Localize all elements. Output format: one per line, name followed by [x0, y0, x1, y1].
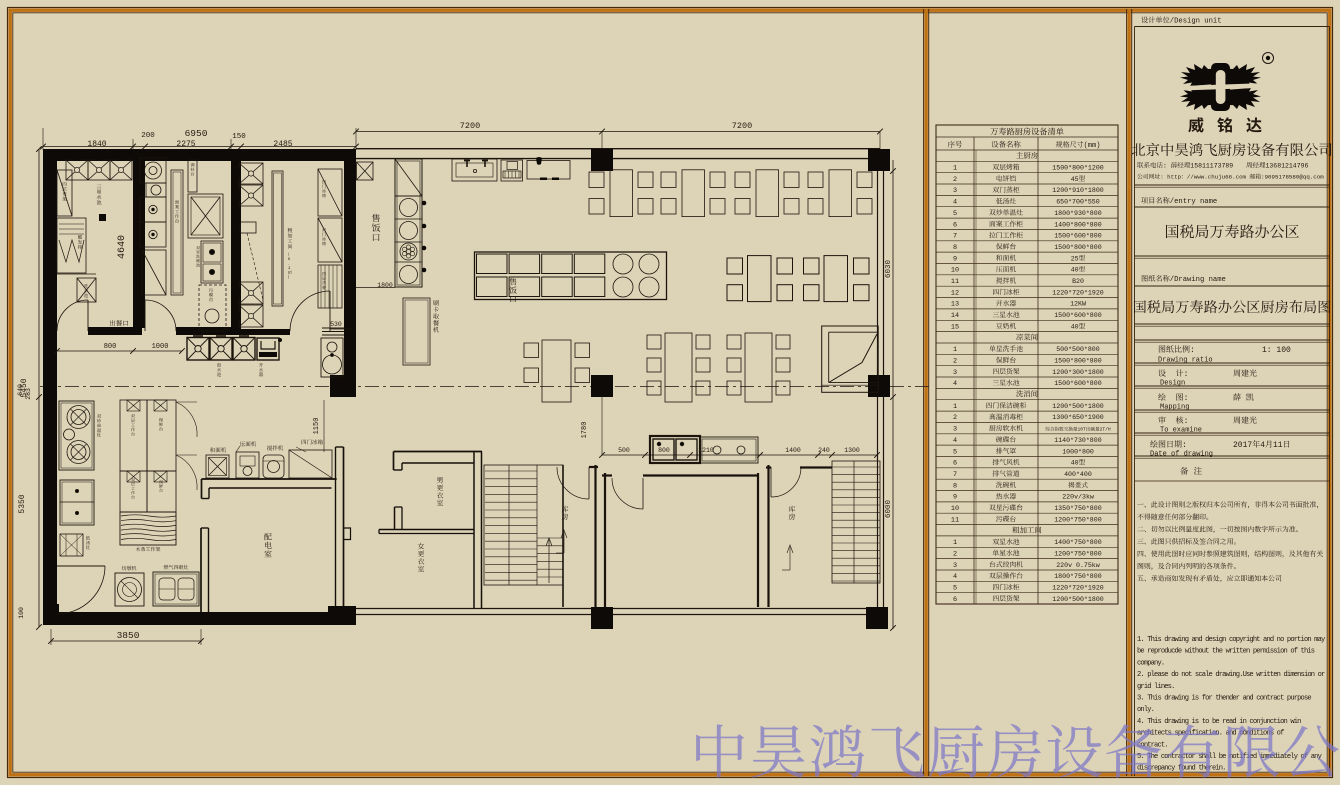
- svg-text:6030: 6030: [885, 259, 893, 278]
- svg-text:150: 150: [232, 133, 246, 141]
- svg-text:1500*800*1200: 1500*800*1200: [1052, 165, 1103, 172]
- svg-text:3: 3: [953, 426, 957, 434]
- svg-text:6000: 6000: [885, 499, 893, 518]
- svg-text:: http: : http: [1160, 174, 1181, 181]
- svg-text:7: 7: [953, 471, 957, 479]
- svg-text:40: 40: [1071, 323, 1079, 330]
- svg-text:220v 0.75kw: 220v 0.75kw: [1056, 562, 1100, 569]
- svg-text:1150: 1150: [313, 418, 321, 435]
- svg-text:3. This drawing is for thender: 3. This drawing is for thender and contr…: [1137, 695, 1311, 703]
- svg-text:1500*600*800: 1500*600*800: [1054, 380, 1102, 387]
- svg-text:11: 11: [951, 516, 959, 524]
- svg-text:40: 40: [1071, 267, 1079, 274]
- svg-text:240: 240: [818, 447, 830, 454]
- svg-text:530: 530: [330, 321, 342, 328]
- svg-text:1210: 1210: [698, 447, 714, 454]
- svg-text:6: 6: [953, 460, 957, 468]
- svg-text::: :: [1190, 346, 1195, 355]
- svg-text:2. please do not scale drawing: 2. please do not scale drawing.Use writt…: [1137, 671, 1325, 679]
- svg-text:(mm): (mm): [1084, 142, 1101, 150]
- svg-text:1: 100: 1: 100: [1262, 346, 1291, 355]
- svg-text:1350*750*800: 1350*750*800: [1054, 505, 1102, 512]
- svg-text:1200*500*1800: 1200*500*1800: [1052, 596, 1103, 603]
- svg-text:12KW: 12KW: [1070, 301, 1086, 308]
- svg-text:1200*300*1800: 1200*300*1800: [1052, 369, 1103, 376]
- svg-text:1400: 1400: [785, 447, 801, 454]
- svg-text:1800: 1800: [377, 282, 393, 289]
- svg-text:500*500*800: 500*500*800: [1056, 346, 1100, 353]
- svg-text:1500*800*800: 1500*800*800: [1054, 358, 1102, 365]
- svg-text:To examine: To examine: [1160, 427, 1202, 435]
- svg-text:3850: 3850: [117, 630, 140, 641]
- svg-text:800: 800: [658, 447, 670, 454]
- svg-text:3: 3: [953, 187, 957, 195]
- svg-text:220v/3kw: 220v/3kw: [1062, 494, 1094, 501]
- svg-text:8: 8: [953, 482, 957, 490]
- svg-text:/Drawing name: /Drawing name: [1170, 276, 1226, 284]
- svg-text:1200*500*1800: 1200*500*1800: [1052, 403, 1103, 410]
- svg-text:1140*730*800: 1140*730*800: [1054, 437, 1102, 444]
- svg-text:6: 6: [953, 596, 957, 604]
- svg-text:15811173789: 15811173789: [1190, 163, 1233, 170]
- svg-text:5: 5: [953, 585, 957, 593]
- svg-text:2275: 2275: [176, 140, 195, 149]
- svg-text:7200: 7200: [732, 121, 752, 131]
- svg-text:283: 283: [25, 388, 32, 400]
- svg-text:25: 25: [1071, 255, 1079, 262]
- svg-text:1400*750*800: 1400*750*800: [1054, 539, 1102, 546]
- svg-text:200: 200: [141, 132, 155, 140]
- svg-text:/Design unit: /Design unit: [1170, 18, 1222, 26]
- svg-text:Drawing ratio: Drawing ratio: [1158, 357, 1213, 365]
- svg-text:11: 11: [1273, 441, 1283, 450]
- svg-text:10: 10: [951, 505, 959, 513]
- svg-text:/entry name: /entry name: [1170, 198, 1217, 206]
- svg-text:company.: company.: [1137, 659, 1164, 667]
- svg-text::: :: [1163, 163, 1167, 170]
- svg-text:650*700*550: 650*700*550: [1056, 199, 1100, 206]
- svg-text:1500*600*800: 1500*600*800: [1054, 312, 1102, 319]
- svg-text:12: 12: [951, 289, 959, 297]
- svg-text:1. This drawing and design cop: 1. This drawing and design copyright and…: [1137, 636, 1326, 644]
- svg-text://www.chuju66.com: //www.chuju66.com: [1187, 174, 1247, 181]
- svg-text:1220*720*1920: 1220*720*1920: [1052, 585, 1103, 592]
- svg-text:1000: 1000: [152, 343, 169, 351]
- svg-text:2: 2: [953, 358, 957, 366]
- svg-text::9095178580@qq.com: :9095178580@qq.com: [1261, 174, 1324, 181]
- svg-text:1: 1: [953, 346, 957, 354]
- svg-text:5: 5: [953, 210, 957, 218]
- svg-text:1780: 1780: [581, 422, 589, 439]
- svg-text:1840: 1840: [87, 140, 106, 149]
- svg-text:Design: Design: [1160, 380, 1185, 388]
- svg-text:2: 2: [953, 176, 957, 184]
- svg-text:640: 640: [17, 384, 24, 396]
- svg-text::: :: [1184, 370, 1189, 379]
- svg-text:9: 9: [953, 494, 957, 502]
- svg-text:9: 9: [953, 255, 957, 263]
- svg-text::: :: [1182, 441, 1187, 450]
- svg-text:be reproducde without the writ: be reproducde without the written permis…: [1137, 648, 1315, 656]
- svg-text:1300*650*1900: 1300*650*1900: [1052, 414, 1103, 421]
- svg-text:7: 7: [953, 233, 957, 241]
- svg-text:1200*750*800: 1200*750*800: [1054, 516, 1102, 523]
- svg-text:6: 6: [953, 221, 957, 229]
- svg-text:45: 45: [1071, 176, 1079, 183]
- svg-text:14: 14: [951, 312, 959, 320]
- svg-text:2017: 2017: [1233, 441, 1252, 450]
- svg-text:grid lines.: grid lines.: [1137, 683, 1174, 691]
- svg-text:13681214796: 13681214796: [1266, 163, 1309, 170]
- svg-text:800: 800: [104, 343, 117, 351]
- svg-text:4: 4: [1260, 441, 1265, 450]
- svg-text:500: 500: [618, 447, 630, 454]
- svg-text::: :: [1184, 417, 1189, 426]
- svg-text:4: 4: [953, 380, 957, 388]
- svg-text:3: 3: [953, 562, 957, 570]
- svg-text:13: 13: [951, 301, 959, 309]
- svg-text:10T: 10T: [1078, 427, 1087, 433]
- svg-text:1000*800: 1000*800: [1062, 448, 1094, 455]
- svg-text:4: 4: [953, 573, 957, 581]
- svg-text:Date of drawing: Date of drawing: [1150, 451, 1213, 459]
- svg-text:2T/H: 2T/H: [1100, 427, 1111, 433]
- svg-text:1800*930*800: 1800*930*800: [1054, 210, 1102, 217]
- svg-text:100: 100: [18, 607, 25, 619]
- svg-text:3: 3: [953, 369, 957, 377]
- svg-text:8: 8: [953, 244, 957, 252]
- svg-text:40: 40: [1071, 460, 1079, 467]
- svg-text:Mapping: Mapping: [1160, 404, 1189, 412]
- svg-text:1300: 1300: [844, 447, 860, 454]
- svg-text:1200*750*800: 1200*750*800: [1054, 550, 1102, 557]
- svg-text:1500*800*800: 1500*800*800: [1054, 244, 1102, 251]
- svg-text:4: 4: [953, 437, 957, 445]
- svg-text:1200*910*1800: 1200*910*1800: [1052, 187, 1103, 194]
- svg-text:2: 2: [953, 414, 957, 422]
- svg-text:5: 5: [953, 448, 957, 456]
- svg-text:2485: 2485: [273, 140, 292, 149]
- svg-text:1500*600*800: 1500*600*800: [1054, 233, 1102, 240]
- svg-text:only.: only.: [1137, 706, 1154, 714]
- svg-text:4: 4: [953, 199, 957, 207]
- svg-text:7200: 7200: [460, 121, 480, 131]
- svg-text:1220*720*1920: 1220*720*1920: [1052, 289, 1103, 296]
- svg-text:B20: B20: [1072, 278, 1084, 285]
- svg-text:10: 10: [951, 267, 959, 275]
- svg-text:1: 1: [953, 539, 957, 547]
- svg-text:1400*800*800: 1400*800*800: [1054, 221, 1102, 228]
- svg-text:4640: 4640: [117, 235, 128, 259]
- svg-text:1800*750*800: 1800*750*800: [1054, 573, 1102, 580]
- svg-text:5350: 5350: [18, 494, 27, 513]
- svg-text:2: 2: [953, 550, 957, 558]
- svg-text:11: 11: [951, 278, 959, 286]
- svg-text::: :: [1184, 394, 1189, 403]
- svg-text:1: 1: [953, 403, 957, 411]
- svg-text:6950: 6950: [185, 128, 208, 139]
- svg-text:1: 1: [953, 165, 957, 173]
- svg-text:4. This drawing is to be read: 4. This drawing is to be read in conjunc…: [1137, 718, 1301, 726]
- svg-text:400*400: 400*400: [1064, 471, 1092, 478]
- svg-text:15: 15: [951, 323, 959, 331]
